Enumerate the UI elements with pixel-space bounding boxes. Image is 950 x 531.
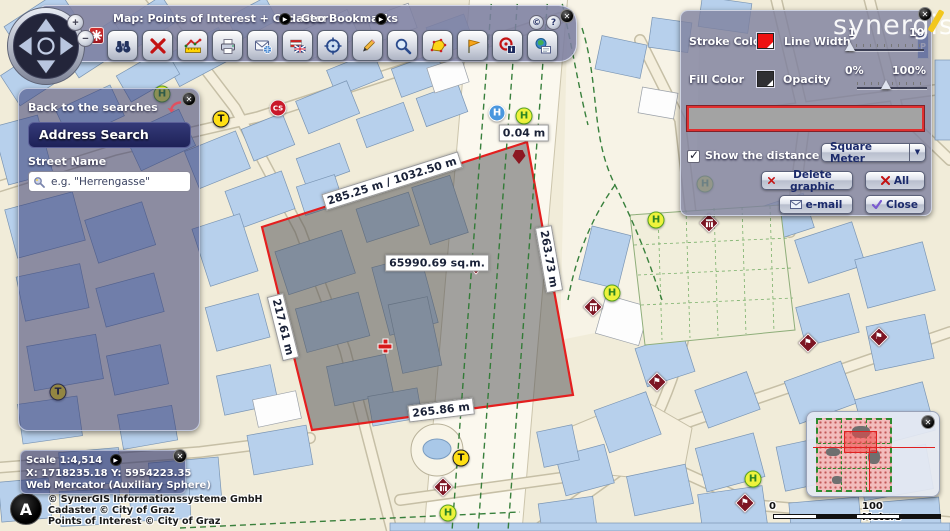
street-name-label: Street Name bbox=[28, 155, 106, 168]
fill-color-label: Fill Color bbox=[689, 73, 744, 86]
line-width-slider-handle[interactable] bbox=[845, 42, 855, 51]
close-button[interactable]: Close bbox=[865, 195, 925, 214]
toolbar-measure-area-button[interactable] bbox=[422, 30, 453, 61]
overview-map-panel bbox=[806, 411, 940, 497]
scalebar-end-label: 100 Meters bbox=[862, 501, 901, 523]
toolbar-send-map-button[interactable] bbox=[247, 30, 278, 61]
toolbar-language-button[interactable] bbox=[282, 30, 313, 61]
delete-graphic-button[interactable]: Delete graphic bbox=[761, 171, 853, 190]
search-field-icon bbox=[33, 176, 45, 188]
toolbar-zoom-button[interactable] bbox=[387, 30, 418, 61]
red-x-icon bbox=[148, 36, 168, 56]
magnifier-icon bbox=[393, 36, 413, 56]
zoom-out-button[interactable]: − bbox=[77, 30, 94, 47]
toolbar-identify-button[interactable]: i bbox=[492, 30, 523, 61]
scalebar-bar bbox=[773, 514, 941, 519]
overview-crosshair-horizontal bbox=[813, 447, 935, 448]
overview-map[interactable] bbox=[816, 418, 892, 492]
address-search-header: Address Search bbox=[28, 122, 191, 148]
toolbar-buttons: i bbox=[107, 30, 558, 61]
svg-text:i: i bbox=[510, 45, 512, 53]
toolbar-map-info-button[interactable] bbox=[527, 30, 558, 61]
app-window: TTTCSHHHHHHHH⚑⚑⚑⚑ P 285.25 m / 1032.50 m… bbox=[0, 0, 950, 531]
overview-close-button[interactable] bbox=[921, 415, 935, 429]
scale-menu-button[interactable] bbox=[110, 454, 122, 466]
status-panel-close-button[interactable] bbox=[173, 449, 187, 463]
map-title: Map: Points of Interest + Cadaster bbox=[113, 12, 328, 25]
draw-tools-panel: Stroke Color Line Width 1 10 Fill Color … bbox=[680, 10, 932, 216]
opacity-ticks bbox=[857, 82, 927, 85]
pencil-icon bbox=[358, 36, 378, 56]
attribution-line: Cadaster © City of Graz bbox=[48, 506, 263, 516]
back-to-searches-link[interactable]: Back to the searches bbox=[28, 100, 182, 115]
line-width-max: 10 bbox=[909, 26, 924, 39]
line-width-label: Line Width bbox=[784, 35, 851, 48]
map-attribution: © SynerGIS Informationssysteme GmbH Cada… bbox=[48, 495, 263, 528]
symbol-preview bbox=[687, 106, 924, 131]
overview-crosshair-vertical bbox=[869, 448, 870, 492]
opacity-max: 100% bbox=[892, 64, 926, 77]
zoom-in-button[interactable]: + bbox=[67, 14, 84, 31]
opacity-min: 0% bbox=[845, 64, 864, 77]
address-panel-close-button[interactable] bbox=[182, 92, 196, 106]
overview-extent-rect[interactable] bbox=[844, 431, 877, 453]
opacity-slider-handle[interactable] bbox=[881, 80, 891, 89]
line-width-slider-track[interactable] bbox=[849, 49, 924, 51]
opacity-label: Opacity bbox=[783, 73, 830, 86]
toolbar-bookmark-flag-button[interactable] bbox=[457, 30, 488, 61]
email-button[interactable]: e-mail bbox=[779, 195, 853, 214]
toolbar-search-button[interactable] bbox=[107, 30, 138, 61]
toolbar-measure-distance-button[interactable] bbox=[177, 30, 208, 61]
measure-area-icon bbox=[428, 36, 448, 56]
flag-icon bbox=[463, 36, 483, 56]
toolbar-delete-redlining-button[interactable] bbox=[142, 30, 173, 61]
delete-all-button[interactable]: All bbox=[865, 171, 925, 190]
unit-selected-value: Square Meter bbox=[822, 141, 909, 165]
projection-readout: Web Mercator (Auxiliary Sphere) bbox=[26, 480, 211, 491]
crosshair-icon bbox=[323, 36, 343, 56]
binoculars-icon bbox=[113, 36, 133, 56]
street-name-field-wrap bbox=[28, 171, 191, 192]
map-title-menu-button[interactable] bbox=[279, 13, 291, 25]
help-button[interactable]: ? bbox=[546, 15, 561, 30]
dropdown-arrow-icon bbox=[909, 144, 925, 161]
main-toolbar: Map: Points of Interest + Cadaster Geo B… bbox=[40, 5, 577, 62]
language-flags-icon bbox=[288, 36, 308, 56]
show-distance-label: Show the distance bbox=[705, 149, 819, 162]
stroke-color-label: Stroke Color bbox=[689, 35, 766, 48]
check-icon bbox=[872, 200, 882, 209]
show-distance-checkbox[interactable] bbox=[687, 150, 700, 163]
address-search-panel: Back to the searches Address Search Stre… bbox=[18, 88, 200, 431]
globe-form-icon bbox=[533, 36, 553, 56]
attribution-line: © SynerGIS Informationssysteme GmbH bbox=[48, 495, 263, 505]
map-status-panel: Scale 1:4,514 X: 1718235.18 Y: 5954223.3… bbox=[20, 450, 186, 494]
draw-panel-close-button[interactable] bbox=[918, 7, 932, 21]
stroke-color-swatch[interactable] bbox=[757, 33, 774, 49]
copyright-button[interactable]: © bbox=[529, 15, 544, 30]
opacity-slider-track[interactable] bbox=[857, 87, 927, 89]
coordinates-readout: X: 1718235.18 Y: 5954223.35 bbox=[26, 468, 191, 479]
toolbar-close-button[interactable] bbox=[560, 9, 574, 23]
email-globe-icon bbox=[253, 36, 273, 56]
toolbar-draw-button[interactable] bbox=[352, 30, 383, 61]
printer-icon bbox=[218, 36, 238, 56]
toolbar-center-map-button[interactable] bbox=[317, 30, 348, 61]
envelope-icon bbox=[790, 200, 802, 209]
line-width-ticks bbox=[849, 44, 923, 47]
identify-info-icon: i bbox=[498, 36, 518, 56]
geo-bookmarks-menu-button[interactable] bbox=[375, 13, 387, 25]
attribution-line: Points of Interest © City of Graz bbox=[48, 517, 263, 527]
fill-color-swatch[interactable] bbox=[757, 71, 774, 87]
measure-line-icon bbox=[183, 36, 203, 56]
red-x-icon bbox=[881, 176, 890, 185]
scalebar-start-label: 0 bbox=[769, 501, 776, 512]
red-x-icon bbox=[768, 176, 775, 185]
street-name-input[interactable] bbox=[49, 175, 186, 189]
toolbar-print-button[interactable] bbox=[212, 30, 243, 61]
line-width-min: 1 bbox=[848, 26, 856, 39]
scale-readout: Scale 1:4,514 bbox=[26, 454, 122, 466]
unit-dropdown[interactable]: Square Meter bbox=[821, 143, 926, 162]
back-arrow-icon bbox=[166, 100, 182, 115]
synergis-logo-badge: A bbox=[10, 493, 42, 525]
